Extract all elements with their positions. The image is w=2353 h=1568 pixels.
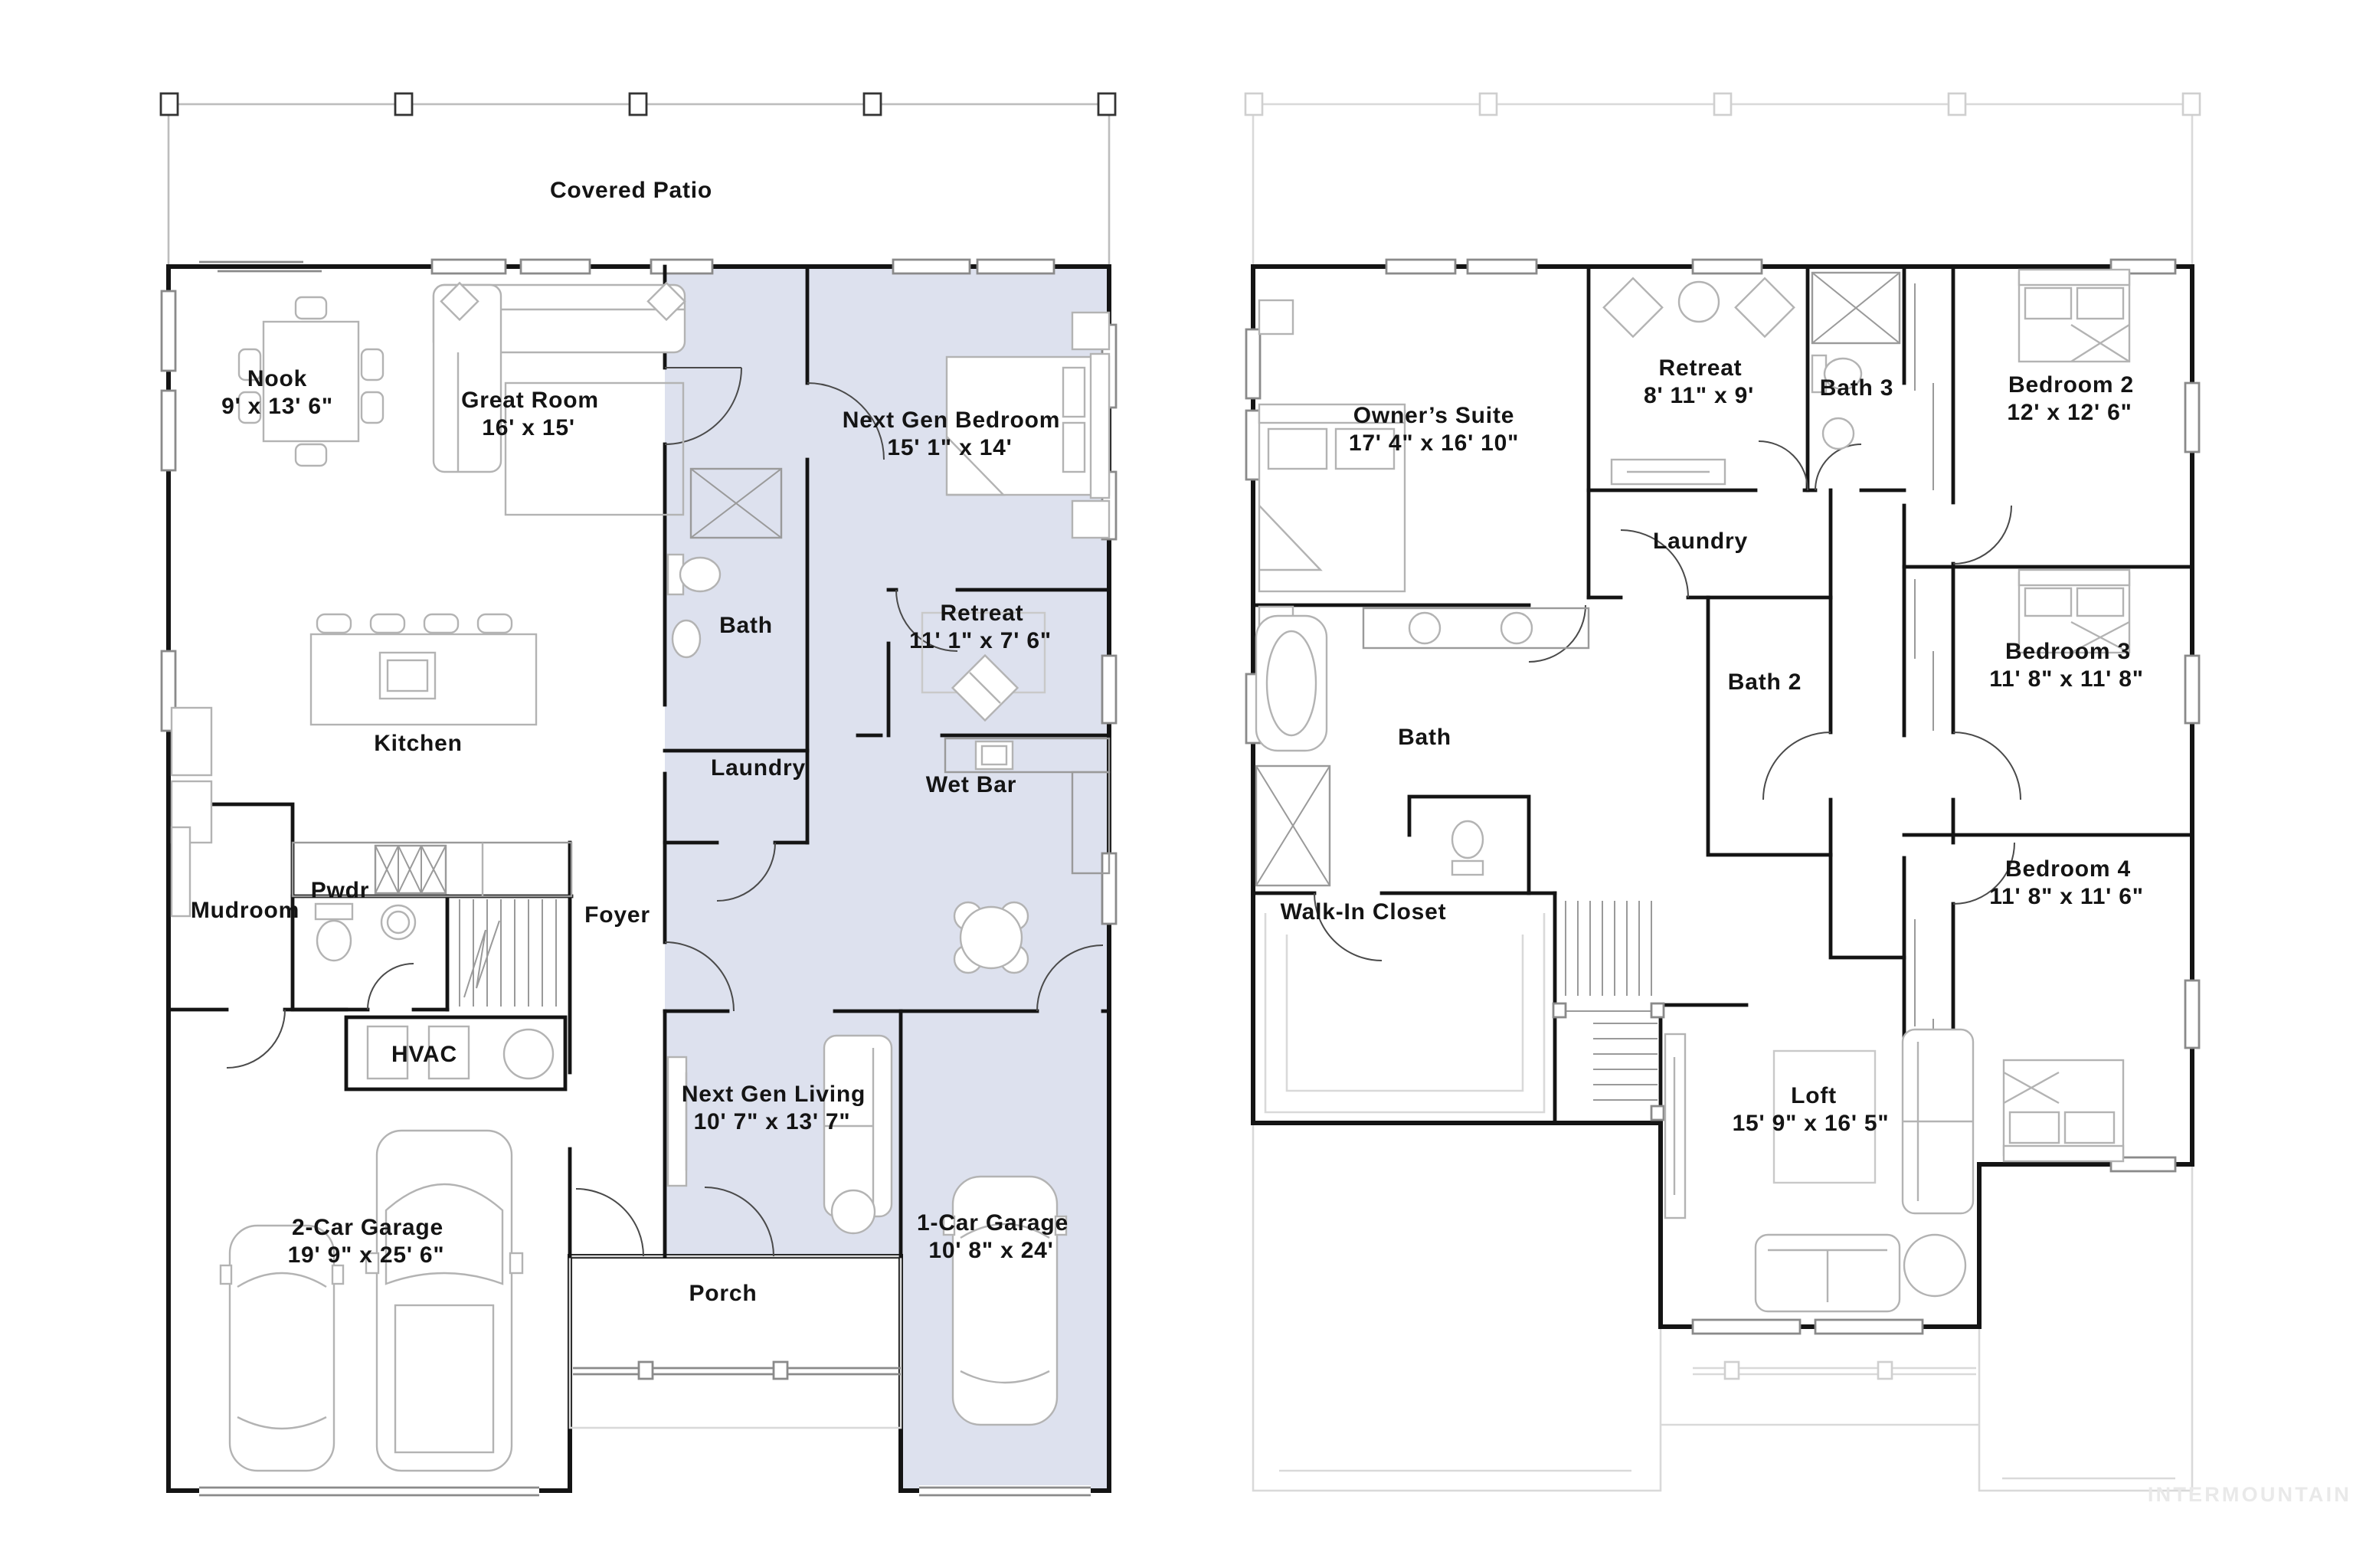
room-dims-retreat: 11' 1" x 7' 6"	[909, 628, 1052, 653]
room-dims-bedroom4: 11' 8" x 11' 6"	[1989, 884, 2144, 909]
room-label-kitchen: Kitchen	[374, 731, 463, 756]
ghost-first-floor-outline	[1253, 1123, 2192, 1491]
ghost-patio-outline	[1245, 93, 2200, 267]
room-label-owners-suite: Owner’s Suite	[1353, 403, 1514, 428]
loft-furniture-icon	[1665, 1030, 1973, 1311]
room-label-bath: Bath	[719, 613, 773, 638]
room-dims-bedroom3: 11' 8" x 11' 8"	[1989, 666, 2144, 692]
bedroom2-bed-icon	[2019, 270, 2129, 362]
round-table-icon	[954, 902, 1028, 973]
room-dims-next-gen-bedroom: 15' 1" x 14'	[887, 435, 1012, 460]
kitchen-island-icon	[311, 614, 536, 725]
closet-sliding-doors-icon	[1915, 283, 1933, 1126]
patio-post-icon	[395, 93, 412, 115]
room-label-loft: Loft	[1791, 1083, 1837, 1108]
room-label-next-gen-bedroom: Next Gen Bedroom	[843, 408, 1061, 433]
owners-bed-icon	[1259, 300, 1405, 640]
kitchen-counter-icon	[172, 708, 571, 896]
patio-post-icon	[864, 93, 881, 115]
room-label-bath2: Bath 2	[1728, 669, 1802, 695]
bath3-fixtures-icon	[1812, 273, 1900, 449]
stairs-icon-floor1	[460, 899, 556, 1007]
room-label-mudroom: Mudroom	[191, 898, 299, 923]
room-label-pwdr: Pwdr	[311, 878, 370, 903]
room-label-porch: Porch	[689, 1281, 757, 1306]
patio-post-icon	[161, 93, 178, 115]
room-label-1-car-garage: 1-Car Garage	[917, 1210, 1069, 1236]
walk-in-closet-shelves-icon	[1265, 913, 1544, 1112]
room-dims-bedroom2: 12' x 12' 6"	[2007, 400, 2132, 425]
truck-icon	[366, 1131, 522, 1471]
stairs-icon-floor2	[1553, 901, 1664, 1120]
room-dims-great-room: 16' x 15'	[482, 415, 575, 440]
mudroom-bench-icon	[172, 827, 190, 916]
room-dims-nook: 9' x 13' 6"	[221, 394, 333, 419]
first-floor-plan: Covered Patio Nook 9' x 13' 6" Great Roo…	[161, 93, 1116, 1496]
floor-plan-sheet: Covered Patio Nook 9' x 13' 6" Great Roo…	[0, 0, 2353, 1568]
bedroom4-bed-icon	[2004, 1060, 2123, 1161]
door-swing-icons-floor2	[1314, 441, 2021, 961]
retreat2-furniture-icon	[1604, 278, 1794, 484]
room-label-2-car-garage: 2-Car Garage	[292, 1215, 443, 1240]
room-label-bedroom2: Bedroom 2	[2008, 372, 2134, 398]
room-dims-owners-suite: 17' 4" x 16' 10"	[1349, 430, 1519, 456]
room-label-laundry2: Laundry	[1653, 529, 1748, 554]
room-dims-loft: 15' 9" x 16' 5"	[1733, 1111, 1890, 1136]
powder-fixtures-icon	[316, 904, 415, 961]
room-label-owner-bath: Bath	[1398, 725, 1451, 750]
room-label-retreat: Retreat	[941, 601, 1024, 626]
room-label-foyer: Foyer	[584, 902, 650, 928]
room-label-wet-bar: Wet Bar	[926, 772, 1016, 797]
room-label-retreat2: Retreat	[1659, 355, 1743, 381]
patio-post-icon	[1098, 93, 1115, 115]
room-label-bath3: Bath 3	[1820, 375, 1894, 401]
patio-post-icon	[630, 93, 646, 115]
room-dims-next-gen-living: 10' 7" x 13' 7"	[694, 1109, 851, 1134]
room-label-bedroom3: Bedroom 3	[2005, 639, 2131, 664]
room-label-great-room: Great Room	[461, 388, 599, 413]
room-dims-1-car-garage: 10' 8" x 24'	[928, 1238, 1053, 1263]
room-label-next-gen-living: Next Gen Living	[682, 1082, 866, 1107]
room-label-hvac: HVAC	[391, 1042, 457, 1067]
room-label-laundry: Laundry	[711, 755, 806, 781]
room-label-bedroom4: Bedroom 4	[2005, 856, 2131, 882]
floor-plan-canvas: Covered Patio Nook 9' x 13' 6" Great Roo…	[0, 0, 2353, 1568]
room-dims-retreat2: 8' 11" x 9'	[1644, 383, 1754, 408]
intermountain-watermark: INTERMOUNTAIN	[2148, 1483, 2351, 1506]
room-label-nook: Nook	[247, 366, 307, 391]
garage-door-icon	[199, 1485, 1091, 1496]
covered-patio-label: Covered Patio	[550, 178, 712, 203]
room-label-walk-in-closet: Walk-In Closet	[1281, 899, 1447, 925]
room-dims-2-car-garage: 19' 9" x 25' 6"	[288, 1242, 445, 1268]
second-floor-plan: Owner’s Suite 17' 4" x 16' 10" Retreat 8…	[1245, 93, 2200, 1491]
